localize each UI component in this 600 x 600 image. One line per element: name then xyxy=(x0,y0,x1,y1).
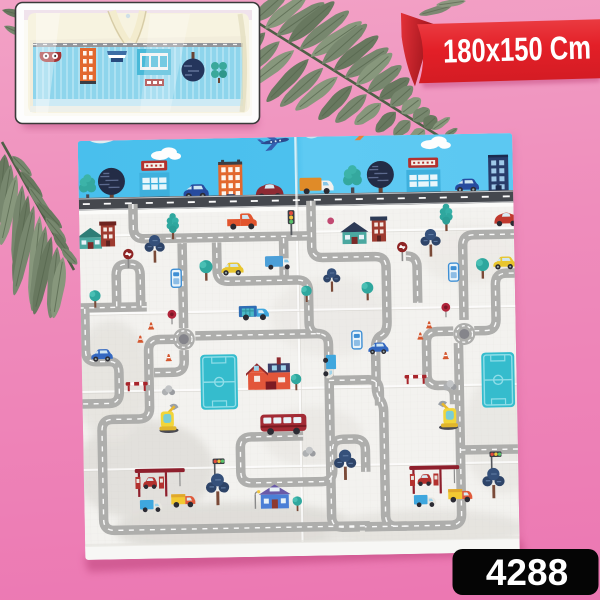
svg-text:4288: 4288 xyxy=(486,552,568,593)
svg-text:180x150 Cm: 180x150 Cm xyxy=(442,28,591,69)
